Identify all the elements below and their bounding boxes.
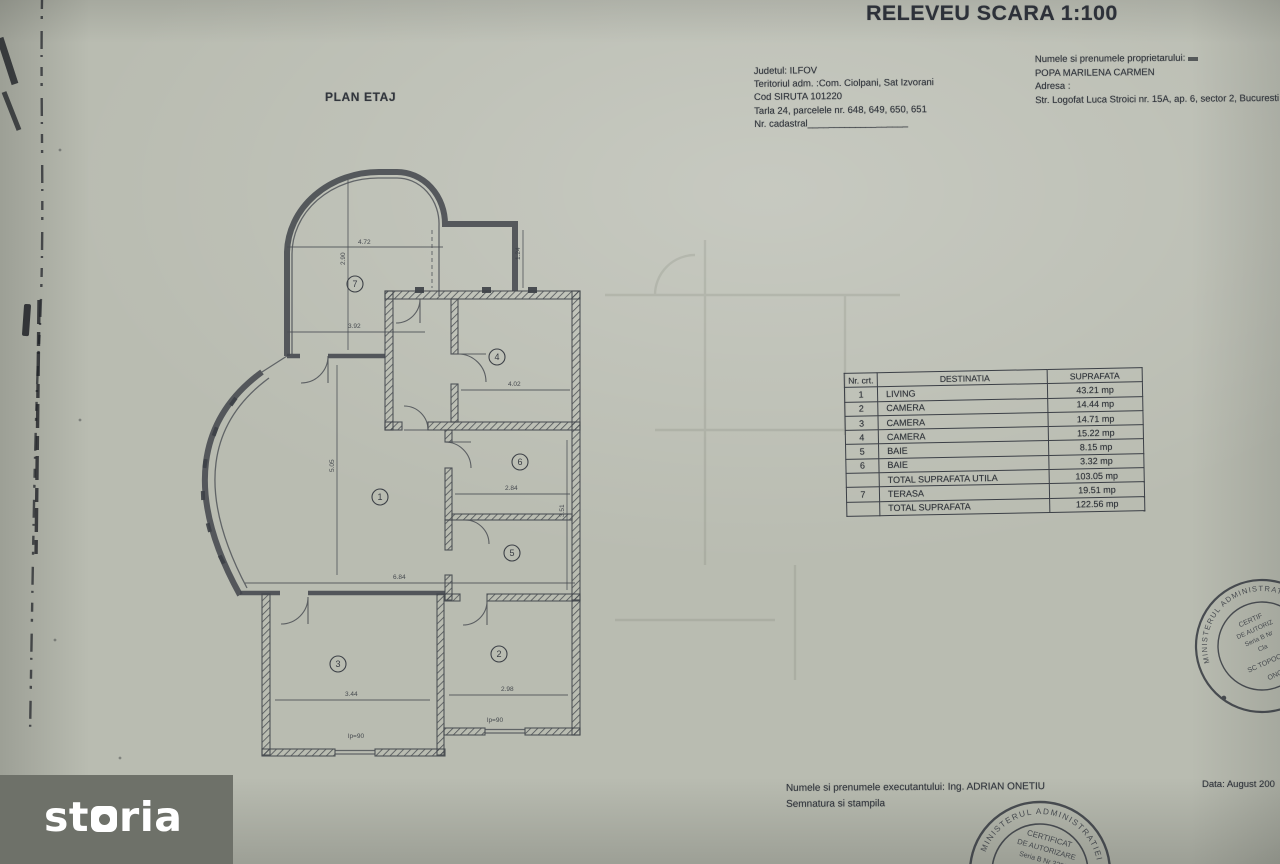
- logo-square-o-icon: [91, 806, 117, 832]
- logo-text-ria: ria: [119, 793, 182, 841]
- storia-logo: stria: [44, 793, 182, 841]
- scanned-floorplan-document: RELEVEU SCARA 1:100 PLAN ETAJ Judetul: I…: [0, 0, 1280, 864]
- scan-artifacts: [0, 0, 1280, 864]
- logo-text-st: st: [44, 793, 89, 841]
- storia-watermark-bar: stria: [0, 775, 233, 864]
